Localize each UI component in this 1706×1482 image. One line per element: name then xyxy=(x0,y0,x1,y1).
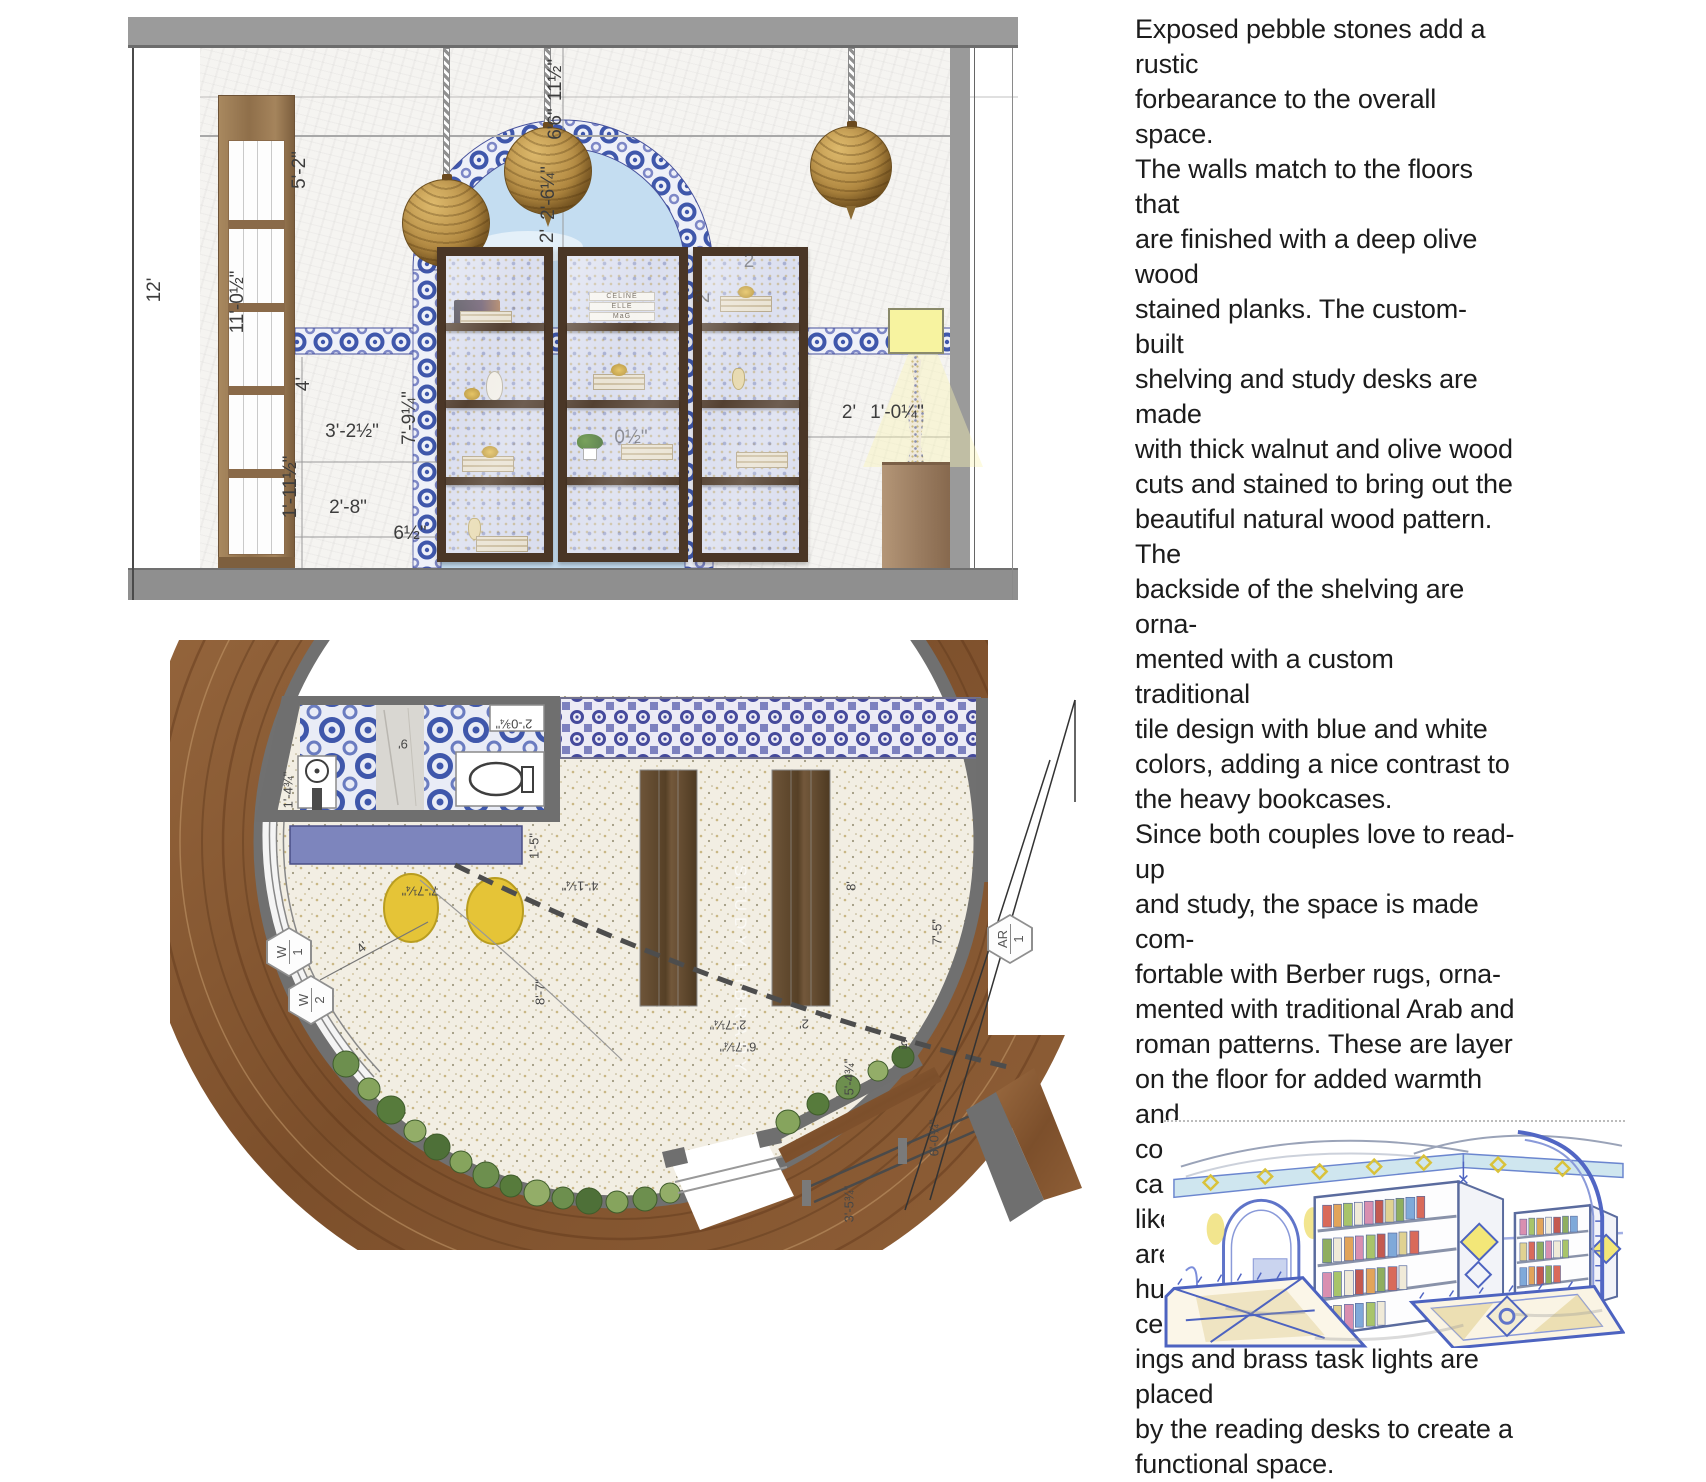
wall-section-cut xyxy=(950,48,970,568)
plan-marker-w1: W1 xyxy=(266,927,312,977)
toilet-tank xyxy=(522,767,533,792)
bookcase-right xyxy=(693,247,808,562)
bathroom xyxy=(256,696,560,822)
wall-elevation-drawing: CELINE ELLE MaG xyxy=(128,17,1018,600)
plan-marker-ar1: AR1 xyxy=(987,914,1033,964)
description-line: roman patterns. These are layer xyxy=(1135,1027,1515,1062)
marble-partition xyxy=(376,705,424,810)
glass-door xyxy=(567,256,679,553)
bookcase-left xyxy=(437,247,553,562)
description-line: shelving and study desks are made xyxy=(1135,362,1515,432)
description-line: Exposed pebble stones add a rustic xyxy=(1135,12,1515,82)
plan-watermark: STUDY LIBRARY xyxy=(731,865,750,1077)
description-line: the heavy bookcases. xyxy=(1135,782,1515,817)
lamp-pedestal xyxy=(882,462,950,568)
bookcase-middle: CELINE ELLE MaG xyxy=(558,247,688,562)
window-grille xyxy=(257,141,258,554)
toilet-icon xyxy=(470,763,522,795)
pouf xyxy=(467,878,523,944)
window-grille xyxy=(243,141,244,554)
ceiling-beam xyxy=(128,17,1018,48)
marker-number: 1 xyxy=(1012,935,1025,942)
description-line: with thick walnut and olive wood xyxy=(1135,432,1515,467)
plan-marker-w2: W2 xyxy=(288,975,334,1025)
window-bench xyxy=(290,826,522,864)
description-line: and study, the space is made com- xyxy=(1135,887,1515,957)
marker-letter: W xyxy=(297,988,312,1012)
description-line: are finished with a deep olive wood xyxy=(1135,222,1515,292)
left-extent-line xyxy=(132,48,134,600)
description-line: mented with a custom traditional xyxy=(1135,642,1515,712)
right-wall xyxy=(976,698,988,882)
marker-number: 2 xyxy=(313,996,326,1003)
faucet xyxy=(312,788,322,810)
marker-number: 1 xyxy=(291,948,304,955)
tile-band-plan xyxy=(560,698,980,758)
pendant-chain-icon xyxy=(544,48,551,128)
glass-door xyxy=(702,256,799,553)
window-mullion xyxy=(229,469,284,478)
description-line: forbearance to the overall space. xyxy=(1135,82,1515,152)
pendant-light-icon xyxy=(504,127,592,215)
marker-letter: W xyxy=(275,940,290,964)
bath-cabinet xyxy=(490,705,544,731)
description-line: backside of the shelving are orna- xyxy=(1135,572,1515,642)
pendant-chain-icon xyxy=(443,48,450,180)
description-line: stained planks. The custom- built xyxy=(1135,292,1515,362)
floor-section-band xyxy=(128,568,1018,600)
pendant-chain-icon xyxy=(848,48,855,128)
table-lamp-shade xyxy=(888,308,944,354)
description-line: mented with traditional Arab and xyxy=(1135,992,1515,1027)
description-line: fortable with Berber rugs, orna- xyxy=(1135,957,1515,992)
description-line: The walls match to the floors that xyxy=(1135,152,1515,222)
right-extent-line xyxy=(1012,48,1013,600)
window-mullion xyxy=(229,386,284,395)
description-line: by the reading desks to create a xyxy=(1135,1412,1515,1447)
description-line: colors, adding a nice contrast to xyxy=(1135,747,1515,782)
marker-letter: AR xyxy=(996,924,1011,954)
description-line: cuts and stained to bring out the xyxy=(1135,467,1515,502)
wall-edge-line xyxy=(974,48,975,568)
description-line: ings and brass task lights are placed xyxy=(1135,1342,1515,1412)
description-line: functional space. xyxy=(1135,1447,1515,1482)
description-line: Since both couples love to read-up xyxy=(1135,817,1515,887)
concept-sketch xyxy=(1164,1120,1625,1348)
description-line: tile design with blue and white xyxy=(1135,712,1515,747)
pendant-light-icon xyxy=(810,126,892,208)
description-line: beautiful natural wood pattern. The xyxy=(1135,502,1515,572)
side-window-panes xyxy=(228,140,285,555)
window-sill xyxy=(218,557,295,568)
window-mullion xyxy=(229,303,284,312)
window-grille xyxy=(271,141,272,554)
window-mullion xyxy=(229,220,284,229)
glass-door xyxy=(446,256,544,553)
